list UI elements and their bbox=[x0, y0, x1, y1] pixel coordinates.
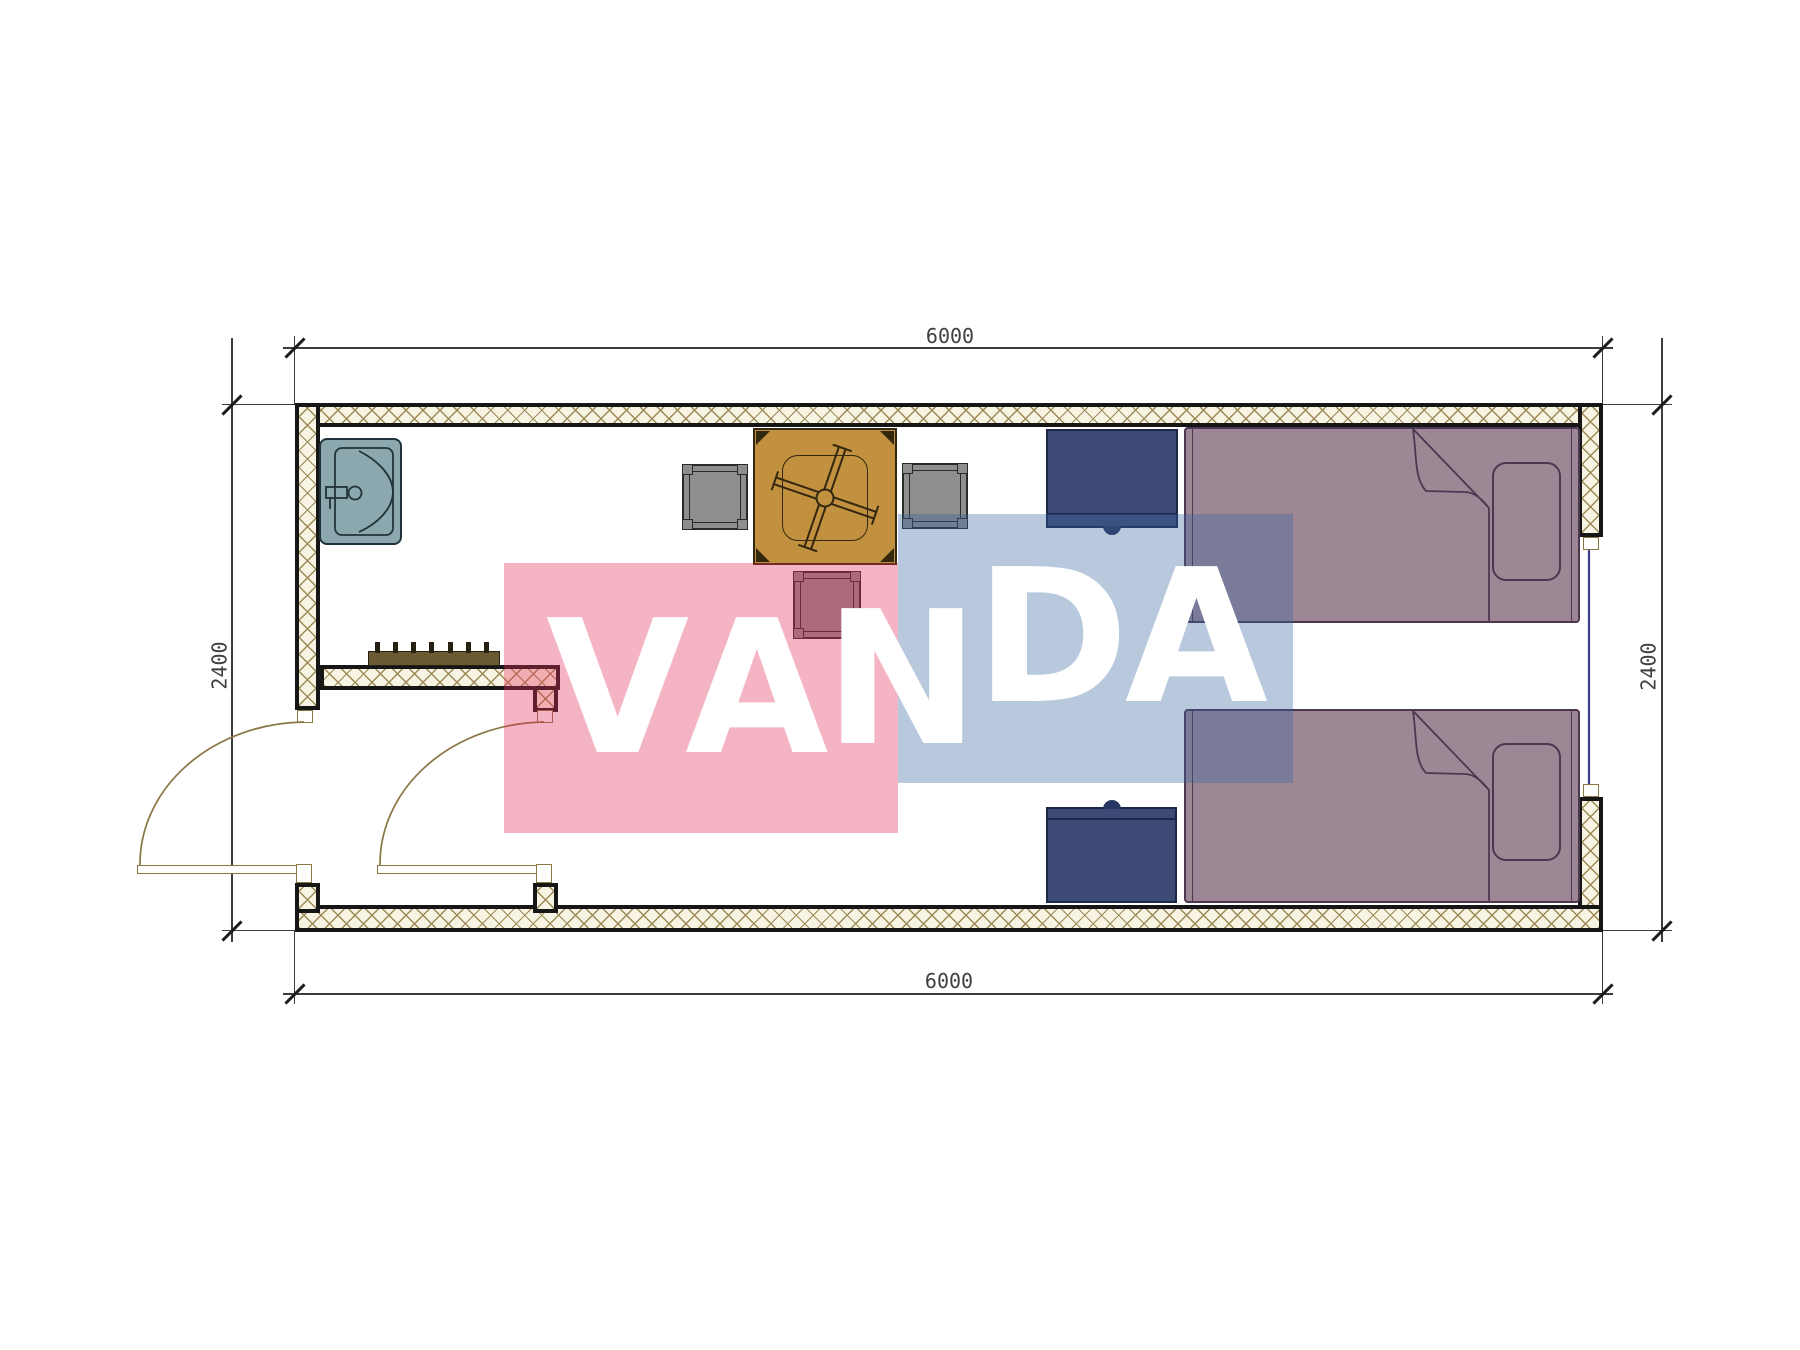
wall-pilaster-mid bbox=[533, 883, 558, 913]
door-hinge-block-1 bbox=[296, 864, 312, 883]
exterior-wall-bottom bbox=[295, 905, 1603, 932]
chair-post bbox=[682, 519, 693, 530]
coat-rack-peg bbox=[484, 642, 489, 653]
coat-rack bbox=[368, 651, 500, 666]
dimension-label-top: 6000 bbox=[875, 326, 1025, 347]
chair-seat-outline bbox=[689, 471, 741, 523]
coat-rack-peg bbox=[393, 642, 398, 653]
nightstand-band bbox=[1048, 809, 1175, 820]
door-swing-arc-1 bbox=[140, 722, 304, 865]
dimension-line-right bbox=[1661, 338, 1663, 942]
chair-post bbox=[737, 464, 748, 475]
watermark-text: VANDA bbox=[546, 596, 1264, 781]
dimension-label-left: 2400 bbox=[210, 591, 231, 741]
watermark-letter: A bbox=[1125, 545, 1264, 730]
bed-headboard bbox=[1571, 429, 1578, 621]
door-jamb-1 bbox=[297, 710, 313, 723]
exterior-wall-top bbox=[295, 403, 1603, 427]
pillow bbox=[1492, 462, 1561, 581]
coat-rack-peg bbox=[375, 642, 380, 653]
table-top-outline bbox=[782, 455, 868, 541]
exterior-wall-right-upper bbox=[1578, 403, 1603, 537]
pillow bbox=[1492, 743, 1561, 861]
window-jamb-top bbox=[1583, 537, 1599, 550]
dimension-line-left bbox=[231, 338, 233, 942]
chair-post bbox=[737, 519, 748, 530]
chair-1 bbox=[682, 464, 748, 530]
bed-headboard bbox=[1571, 711, 1578, 901]
chair-post bbox=[902, 463, 913, 474]
watermark-letter: D bbox=[975, 545, 1125, 730]
wall-pilaster-left bbox=[295, 883, 320, 913]
watermark-letter: V bbox=[546, 596, 685, 781]
window-jamb-bottom bbox=[1583, 784, 1599, 797]
dimension-label-right: 2400 bbox=[1639, 592, 1660, 742]
dimension-line-bottom bbox=[283, 993, 1613, 995]
door-hinge-block-2 bbox=[536, 864, 552, 883]
watermark-letter: A bbox=[685, 596, 824, 781]
coat-rack-peg bbox=[411, 642, 416, 653]
nightstand-knob bbox=[1103, 800, 1121, 809]
door-leaf-2 bbox=[377, 865, 547, 874]
dimension-label-bottom: 6000 bbox=[874, 971, 1024, 992]
floor-plan-canvas: 6000 6000 2400 2400 bbox=[0, 0, 1800, 1350]
exterior-wall-left bbox=[295, 403, 320, 710]
chair-post bbox=[682, 464, 693, 475]
door-leaf-1 bbox=[137, 865, 307, 874]
sink bbox=[319, 438, 402, 545]
coat-rack-peg bbox=[448, 642, 453, 653]
nightstand-2 bbox=[1046, 807, 1177, 903]
dining-table bbox=[753, 428, 897, 565]
coat-rack-peg bbox=[429, 642, 434, 653]
coat-rack-peg bbox=[466, 642, 471, 653]
chair-post bbox=[957, 463, 968, 474]
watermark-letter: N bbox=[824, 587, 975, 772]
